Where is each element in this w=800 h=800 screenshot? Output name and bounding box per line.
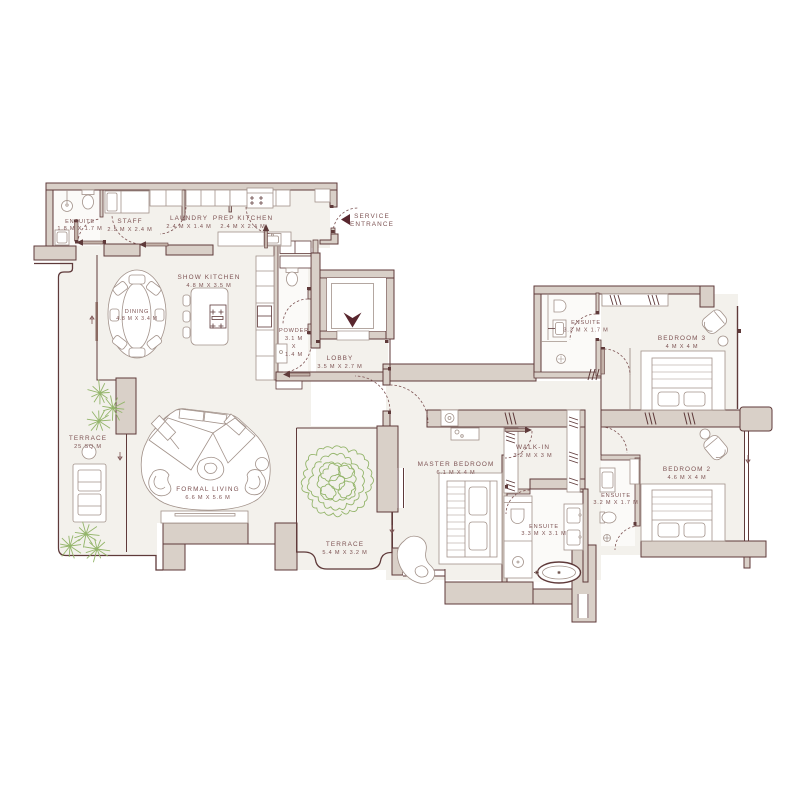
svg-text:FORMAL LIVING: FORMAL LIVING	[176, 486, 239, 493]
svg-text:ENTRANCE: ENTRANCE	[350, 221, 394, 228]
svg-text:3.3 M X 3.1 M: 3.3 M X 3.1 M	[521, 531, 566, 537]
svg-text:2.4 M X 2.4 M: 2.4 M X 2.4 M	[220, 224, 265, 230]
svg-text:STAFF: STAFF	[117, 218, 142, 225]
svg-text:LOBBY: LOBBY	[327, 355, 354, 362]
svg-text:3.2 M X 1.7 M: 3.2 M X 1.7 M	[593, 500, 638, 506]
svg-text:5.4 M X 3.2 M: 5.4 M X 3.2 M	[322, 550, 367, 556]
svg-text:3.1 M: 3.1 M	[285, 336, 303, 342]
svg-text:3.3 M X 1.7 M: 3.3 M X 1.7 M	[563, 328, 608, 334]
svg-text:6.1 M X 4 M: 6.1 M X 4 M	[437, 470, 476, 476]
svg-text:MASTER BEDROOM: MASTER BEDROOM	[418, 461, 495, 468]
svg-text:2.4 M X 1.4 M: 2.4 M X 1.4 M	[166, 224, 211, 230]
svg-text:ENSUITE: ENSUITE	[529, 524, 559, 530]
svg-text:SHOW KITCHEN: SHOW KITCHEN	[178, 274, 241, 281]
svg-text:SERVICE: SERVICE	[354, 213, 390, 220]
svg-text:25 SQ M: 25 SQ M	[74, 444, 102, 450]
svg-text:LAUNDRY: LAUNDRY	[170, 215, 208, 222]
svg-text:X: X	[292, 344, 297, 350]
svg-text:ENSUITE: ENSUITE	[601, 493, 631, 499]
svg-text:BEDROOM 3: BEDROOM 3	[658, 335, 706, 342]
svg-text:ENSUITE: ENSUITE	[65, 219, 95, 225]
svg-text:4.6 M X 4 M: 4.6 M X 4 M	[668, 475, 707, 481]
svg-text:PREP KITCHEN: PREP KITCHEN	[213, 215, 273, 222]
svg-text:TERRACE: TERRACE	[326, 541, 364, 548]
svg-text:1.4 M: 1.4 M	[285, 352, 303, 358]
svg-text:1.8 M X 1.7 M: 1.8 M X 1.7 M	[57, 226, 102, 232]
svg-text:ENSUITE: ENSUITE	[571, 320, 601, 326]
svg-text:2.5 M X 2.4 M: 2.5 M X 2.4 M	[107, 227, 152, 233]
svg-text:3.5 M X 2.7 M: 3.5 M X 2.7 M	[317, 364, 362, 370]
svg-text:POWDER: POWDER	[279, 328, 309, 334]
svg-text:4.8 M X 3.4 M: 4.8 M X 3.4 M	[116, 316, 158, 322]
svg-text:DINING: DINING	[125, 309, 149, 315]
svg-text:BEDROOM 2: BEDROOM 2	[663, 466, 711, 473]
svg-text:6.6 M X 5.6 M: 6.6 M X 5.6 M	[185, 495, 230, 501]
svg-text:4 M X 4 M: 4 M X 4 M	[666, 344, 699, 350]
svg-text:TERRACE: TERRACE	[69, 435, 107, 442]
svg-text:WALK-IN: WALK-IN	[516, 444, 550, 451]
svg-text:3.2 M X 3 M: 3.2 M X 3 M	[514, 453, 553, 459]
svg-text:4.8 M X 3.5 M: 4.8 M X 3.5 M	[186, 283, 231, 289]
